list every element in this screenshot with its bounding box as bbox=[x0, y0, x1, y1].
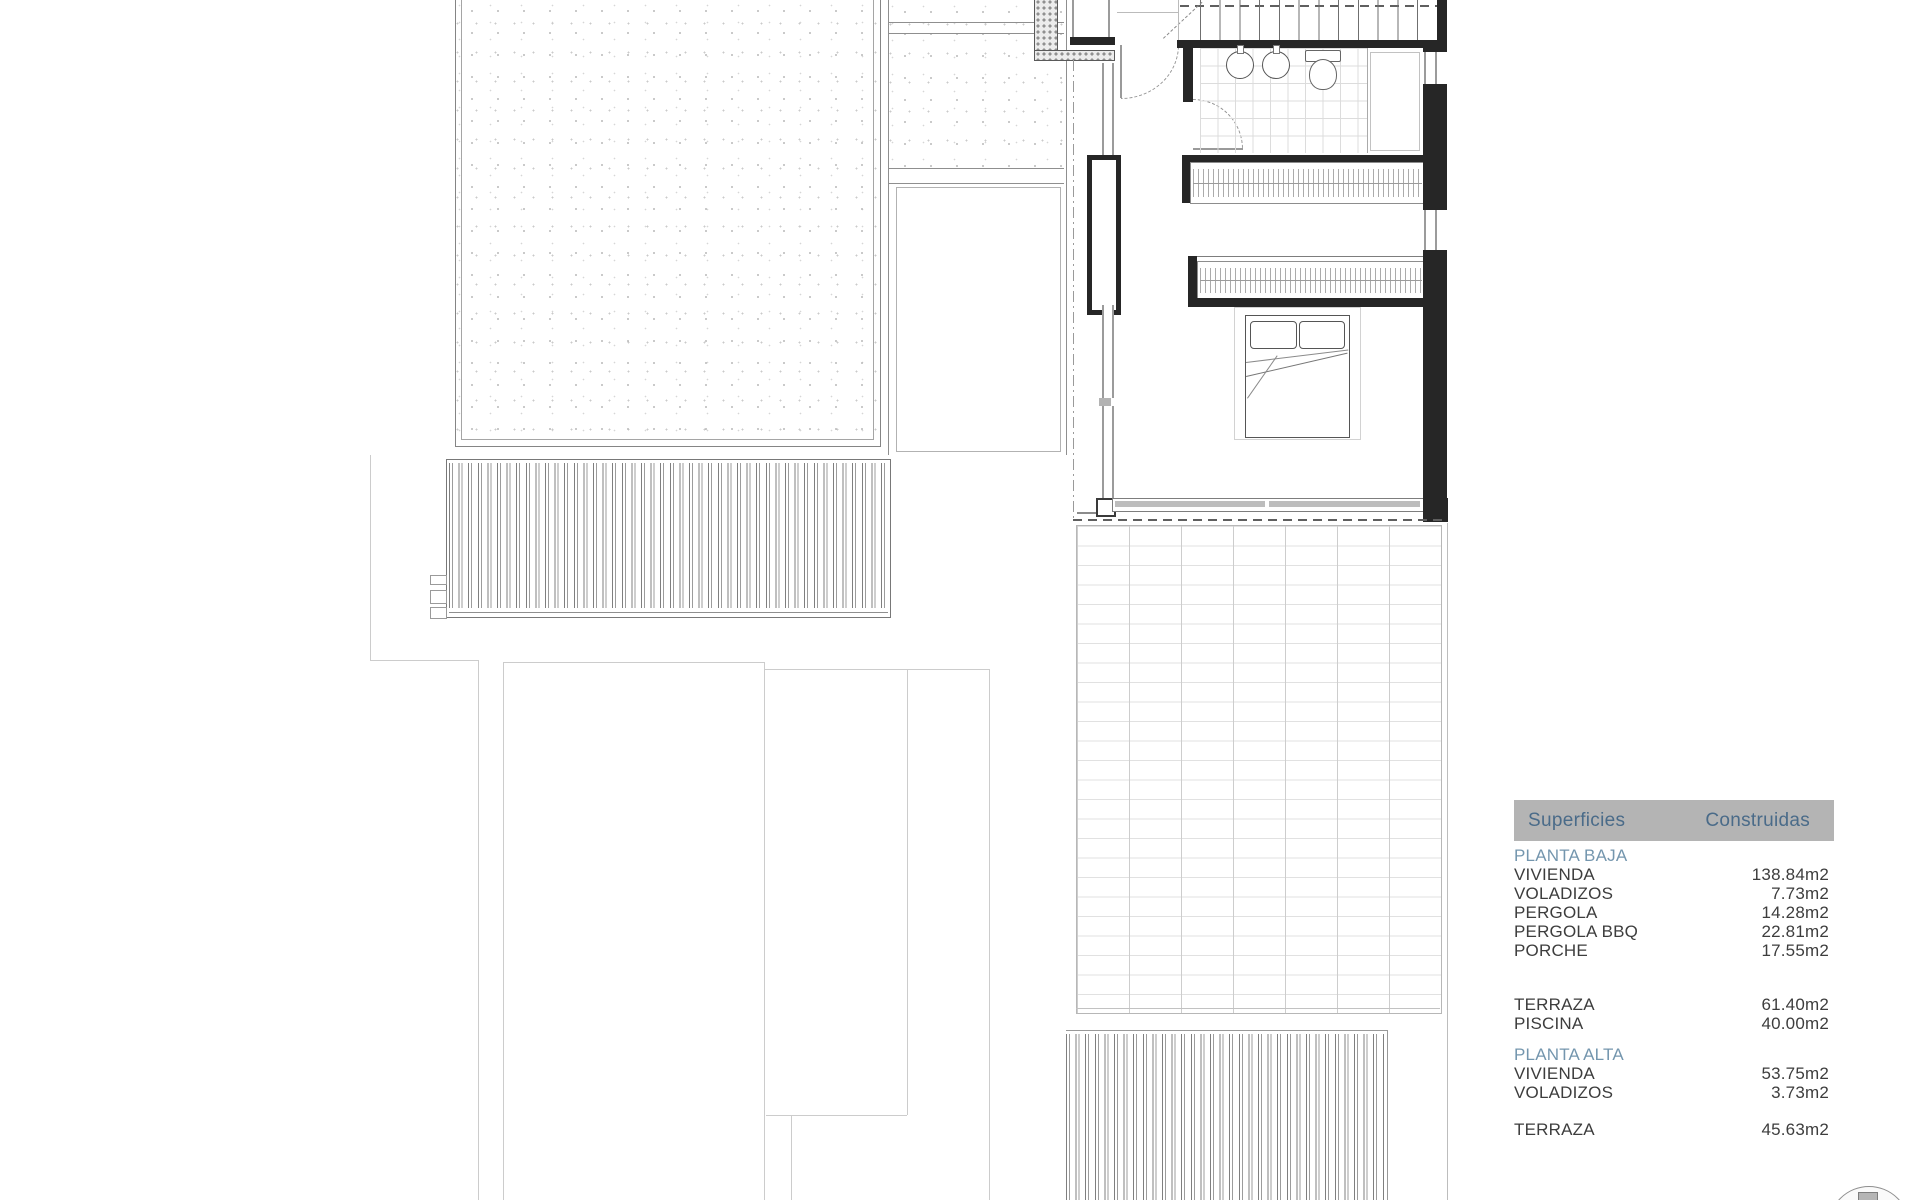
row-label: PISCINA bbox=[1514, 1014, 1583, 1033]
row-value: 3.73m2 bbox=[1771, 1083, 1829, 1102]
east-wall bbox=[1423, 40, 1447, 52]
hatched-wall-horizontal bbox=[1034, 50, 1115, 61]
groundfloor-outline bbox=[503, 662, 504, 1200]
roof-strip-line bbox=[889, 183, 1064, 184]
table-row: VOLADIZOS 7.73m2 bbox=[1514, 884, 1834, 903]
south-window-band bbox=[1112, 498, 1425, 512]
east-window bbox=[1424, 52, 1437, 84]
hatched-wall-vertical bbox=[1034, 0, 1058, 52]
staircase bbox=[1200, 0, 1437, 40]
wardrobe1-left-cap bbox=[1182, 155, 1190, 203]
roof-main-inner-border bbox=[461, 0, 874, 440]
sink-tap bbox=[1273, 45, 1280, 54]
table-row: TERRAZA 45.63m2 bbox=[1514, 1120, 1834, 1139]
roof-overhang-dashed-line bbox=[1073, 519, 1447, 521]
wardrobe1-top-wall bbox=[1182, 155, 1423, 162]
pergola-tick bbox=[430, 590, 447, 604]
wardrobe2-hatch bbox=[1200, 268, 1422, 293]
areas-table: PLANTA BAJA VIVIENDA 138.84m2 VOLADIZOS … bbox=[1514, 846, 1834, 1139]
bathroom-left-wall bbox=[1183, 42, 1193, 102]
roof-strip bbox=[888, 0, 1067, 455]
west-step-line bbox=[1077, 512, 1096, 514]
row-label: VIVIENDA bbox=[1514, 865, 1595, 884]
hall-top-window bbox=[1072, 0, 1110, 37]
wardrobe1 bbox=[1190, 162, 1425, 204]
table-row: PLANTA ALTA bbox=[1514, 1045, 1834, 1064]
terrace-bottom-line bbox=[1076, 1008, 1440, 1009]
south-window-glass bbox=[1269, 501, 1420, 507]
row-label: PLANTA BAJA bbox=[1514, 846, 1627, 865]
groundfloor-outline bbox=[370, 660, 478, 661]
areas-table-header-col2: Construidas bbox=[1705, 810, 1810, 832]
terrace-deck bbox=[1076, 525, 1442, 1014]
row-label: PLANTA ALTA bbox=[1514, 1045, 1624, 1064]
east-wall bbox=[1423, 84, 1447, 210]
bedroom-top-wall bbox=[1188, 298, 1423, 307]
skylight-panel bbox=[896, 187, 1061, 452]
groundfloor-outline bbox=[764, 669, 989, 670]
row-value: 14.28m2 bbox=[1761, 903, 1829, 922]
areas-table-header: Superficies Construidas bbox=[1514, 800, 1834, 841]
window-mullion bbox=[1099, 398, 1111, 406]
sink-basin bbox=[1262, 51, 1290, 79]
table-row: PISCINA 40.00m2 bbox=[1514, 1014, 1834, 1033]
row-label: PORCHE bbox=[1514, 941, 1588, 960]
row-value: 45.63m2 bbox=[1761, 1120, 1829, 1139]
roof-strip-line bbox=[889, 168, 1064, 169]
groundfloor-outline bbox=[764, 662, 765, 1200]
groundfloor-outline bbox=[478, 660, 479, 1200]
table-row: VOLADIZOS 3.73m2 bbox=[1514, 1083, 1834, 1102]
row-value: 7.73m2 bbox=[1771, 884, 1829, 903]
groundfloor-outline bbox=[791, 1115, 792, 1200]
pergola-bottom-line bbox=[449, 612, 888, 613]
wall-pier bbox=[1087, 155, 1121, 315]
groundfloor-outline bbox=[989, 669, 990, 1200]
row-value: 17.55m2 bbox=[1761, 941, 1829, 960]
table-row: VIVIENDA 53.75m2 bbox=[1514, 1064, 1834, 1083]
west-window bbox=[1102, 305, 1114, 398]
bed-pillow bbox=[1299, 321, 1345, 349]
bathroom-top-wall bbox=[1177, 40, 1423, 48]
sink-tap bbox=[1237, 45, 1244, 54]
row-value: 53.75m2 bbox=[1761, 1064, 1829, 1083]
wardrobe1-hatch bbox=[1193, 169, 1422, 197]
row-label: VIVIENDA bbox=[1514, 1064, 1595, 1083]
pergola-slats bbox=[449, 463, 888, 608]
row-value: 138.84m2 bbox=[1752, 865, 1829, 884]
row-label: VOLADIZOS bbox=[1514, 884, 1613, 903]
pergola-tick bbox=[430, 575, 447, 585]
table-row: PERGOLA 14.28m2 bbox=[1514, 903, 1834, 922]
sink-basin bbox=[1226, 51, 1254, 79]
row-label: TERRAZA bbox=[1514, 995, 1595, 1014]
groundfloor-outline bbox=[370, 455, 371, 660]
stairs-cut-dashed-line bbox=[1163, 2, 1202, 39]
shower-divider bbox=[1367, 48, 1368, 153]
section-cut-line bbox=[1073, 60, 1074, 520]
areas-table-header-col1: Superficies bbox=[1528, 810, 1625, 832]
row-label: PERGOLA bbox=[1514, 903, 1598, 922]
row-value: 40.00m2 bbox=[1761, 1014, 1829, 1033]
hall-door-swing-arc bbox=[1121, 45, 1179, 99]
east-wall bbox=[1423, 250, 1447, 522]
table-row: TERRAZA 61.40m2 bbox=[1514, 995, 1834, 1014]
table-row: PERGOLA BBQ 22.81m2 bbox=[1514, 922, 1834, 941]
landing-edge-line bbox=[1117, 12, 1178, 13]
floor-plan-canvas: Superficies Construidas PLANTA BAJA VIVI… bbox=[0, 0, 1920, 1200]
hall-wall bbox=[1070, 37, 1115, 45]
shower-area bbox=[1370, 52, 1420, 151]
row-value: 22.81m2 bbox=[1761, 922, 1829, 941]
north-arrow-needle bbox=[1858, 1192, 1878, 1200]
groundfloor-outline bbox=[503, 662, 764, 663]
pergola-tick bbox=[430, 607, 447, 619]
table-row: VIVIENDA 138.84m2 bbox=[1514, 865, 1834, 884]
groundfloor-outline bbox=[907, 669, 908, 1115]
landing-wall-line bbox=[1178, 0, 1179, 44]
table-row: PORCHE 17.55m2 bbox=[1514, 941, 1834, 960]
row-label: VOLADIZOS bbox=[1514, 1083, 1613, 1102]
table-row: PLANTA BAJA bbox=[1514, 846, 1834, 865]
plot-edge-line bbox=[1447, 523, 1448, 1200]
row-value: 61.40m2 bbox=[1761, 995, 1829, 1014]
lower-pergola-slats bbox=[1066, 1034, 1386, 1200]
bed-pillow bbox=[1250, 321, 1297, 349]
row-label: TERRAZA bbox=[1514, 1120, 1595, 1139]
wardrobe2 bbox=[1197, 261, 1425, 300]
groundfloor-outline bbox=[766, 1115, 907, 1116]
row-label: PERGOLA BBQ bbox=[1514, 922, 1638, 941]
south-window-glass bbox=[1115, 501, 1265, 507]
west-window bbox=[1102, 406, 1114, 498]
west-window bbox=[1102, 63, 1114, 155]
lower-pergola-louvers bbox=[1066, 1030, 1388, 1200]
pergola-louvers bbox=[446, 459, 891, 618]
east-window bbox=[1424, 210, 1437, 250]
toilet-bowl bbox=[1309, 59, 1337, 90]
